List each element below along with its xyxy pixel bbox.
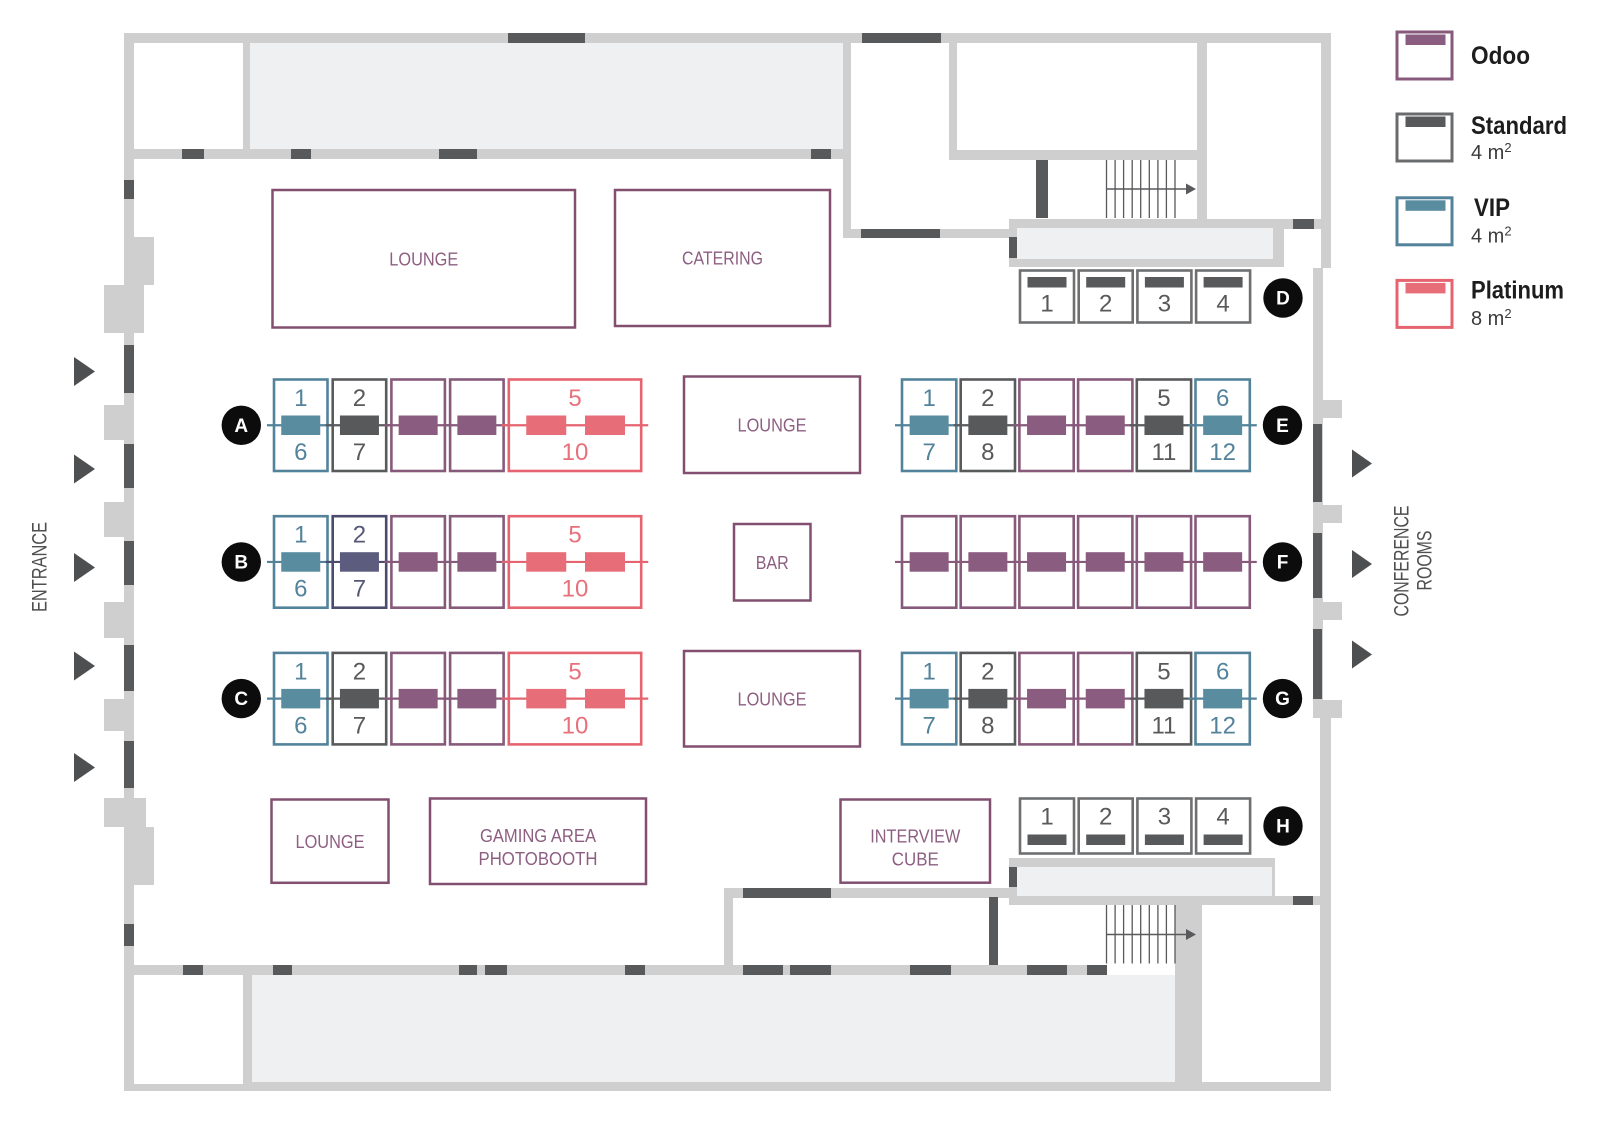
- svg-text:D: D: [1276, 289, 1290, 310]
- svg-text:G: G: [1275, 689, 1290, 710]
- svg-text:CONFERENCE: CONFERENCE: [1391, 506, 1414, 617]
- svg-text:12: 12: [1209, 439, 1236, 466]
- svg-text:BAR: BAR: [756, 552, 789, 573]
- svg-text:7: 7: [353, 712, 366, 739]
- svg-text:4: 4: [1216, 291, 1229, 318]
- svg-text:1: 1: [294, 385, 307, 412]
- svg-text:ROOMS: ROOMS: [1414, 531, 1437, 591]
- svg-text:INTERVIEW: INTERVIEW: [870, 826, 960, 847]
- svg-text:GAMING AREA: GAMING AREA: [480, 825, 597, 846]
- svg-text:6: 6: [294, 712, 307, 739]
- svg-text:4: 4: [1216, 804, 1229, 831]
- svg-text:ENTRANCE: ENTRANCE: [29, 522, 52, 612]
- svg-text:5: 5: [568, 385, 581, 412]
- svg-text:B: B: [234, 553, 248, 574]
- svg-text:CATERING: CATERING: [682, 248, 763, 269]
- svg-text:7: 7: [353, 439, 366, 466]
- svg-text:2: 2: [353, 658, 366, 685]
- svg-text:11: 11: [1151, 439, 1176, 466]
- svg-text:11: 11: [1151, 712, 1176, 739]
- svg-text:3: 3: [1158, 291, 1171, 318]
- svg-text:E: E: [1276, 416, 1289, 437]
- svg-text:2: 2: [353, 522, 366, 549]
- svg-text:10: 10: [562, 712, 589, 739]
- svg-text:10: 10: [562, 576, 589, 603]
- svg-text:8 m2: 8 m2: [1471, 306, 1512, 331]
- svg-text:1: 1: [294, 522, 307, 549]
- svg-text:VIP: VIP: [1474, 194, 1510, 222]
- svg-text:F: F: [1277, 553, 1289, 574]
- svg-text:1: 1: [922, 658, 935, 685]
- svg-text:5: 5: [1157, 385, 1170, 412]
- svg-text:H: H: [1276, 817, 1290, 838]
- svg-text:2: 2: [353, 385, 366, 412]
- svg-text:7: 7: [922, 712, 935, 739]
- svg-text:6: 6: [294, 576, 307, 603]
- svg-text:4 m2: 4 m2: [1471, 223, 1512, 248]
- svg-text:5: 5: [1157, 658, 1170, 685]
- svg-text:Platinum: Platinum: [1471, 277, 1564, 305]
- svg-text:LOUNGE: LOUNGE: [738, 689, 807, 710]
- svg-text:2: 2: [981, 658, 994, 685]
- svg-text:1: 1: [1040, 291, 1053, 318]
- svg-text:6: 6: [1216, 658, 1229, 685]
- svg-text:LOUNGE: LOUNGE: [738, 415, 807, 436]
- svg-text:4 m2: 4 m2: [1471, 140, 1512, 165]
- svg-text:6: 6: [294, 439, 307, 466]
- svg-text:3: 3: [1158, 804, 1171, 831]
- svg-text:C: C: [234, 689, 248, 710]
- svg-text:7: 7: [922, 439, 935, 466]
- svg-text:Odoo: Odoo: [1471, 42, 1530, 70]
- svg-text:CUBE: CUBE: [892, 849, 939, 870]
- svg-text:1: 1: [922, 385, 935, 412]
- svg-text:PHOTOBOOTH: PHOTOBOOTH: [479, 848, 598, 869]
- svg-text:8: 8: [981, 712, 994, 739]
- svg-text:5: 5: [568, 658, 581, 685]
- svg-text:LOUNGE: LOUNGE: [389, 249, 458, 270]
- svg-text:7: 7: [353, 576, 366, 603]
- svg-text:2: 2: [1099, 804, 1112, 831]
- svg-text:6: 6: [1216, 385, 1229, 412]
- svg-text:5: 5: [568, 522, 581, 549]
- svg-text:Standard: Standard: [1471, 112, 1567, 140]
- svg-text:1: 1: [294, 658, 307, 685]
- svg-text:8: 8: [981, 439, 994, 466]
- svg-text:2: 2: [981, 385, 994, 412]
- svg-text:LOUNGE: LOUNGE: [296, 831, 365, 852]
- svg-text:10: 10: [562, 439, 589, 466]
- svg-text:2: 2: [1099, 291, 1112, 318]
- svg-text:12: 12: [1209, 712, 1236, 739]
- svg-text:A: A: [234, 416, 248, 437]
- svg-text:1: 1: [1040, 804, 1053, 831]
